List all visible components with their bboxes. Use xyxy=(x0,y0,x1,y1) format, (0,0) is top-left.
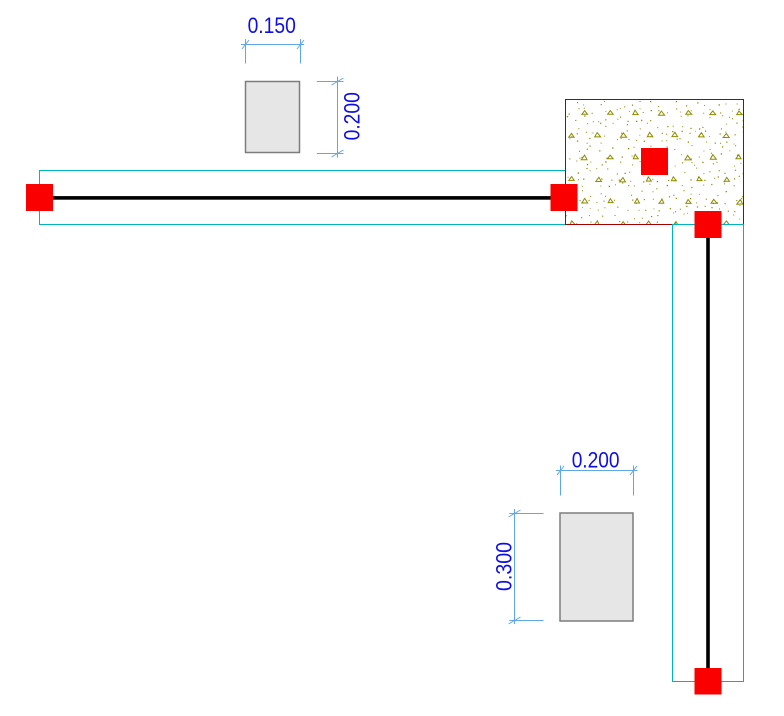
svg-text:0.150: 0.150 xyxy=(248,13,296,38)
svg-text:0.300: 0.300 xyxy=(491,542,516,591)
svg-text:0.200: 0.200 xyxy=(572,447,620,472)
svg-text:0.200: 0.200 xyxy=(340,92,365,140)
